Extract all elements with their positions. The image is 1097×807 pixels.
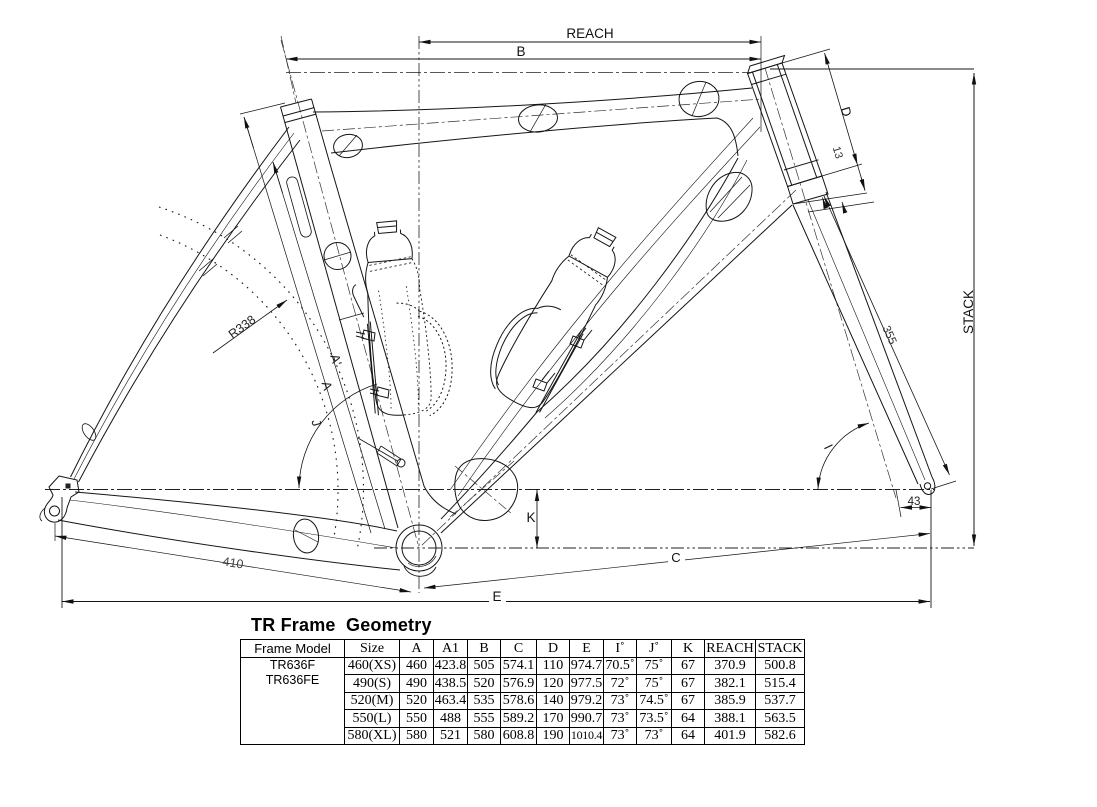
svg-text:A': A' — [327, 352, 345, 367]
svg-text:B: B — [516, 44, 525, 59]
svg-text:I: I — [821, 442, 836, 452]
svg-text:J: J — [308, 418, 324, 429]
svg-text:R338: R338 — [226, 312, 258, 341]
svg-text:REACH: REACH — [566, 26, 613, 41]
svg-text:E: E — [492, 589, 501, 604]
svg-text:C: C — [671, 550, 680, 565]
svg-text:410: 410 — [222, 555, 245, 572]
svg-text:13: 13 — [830, 145, 845, 160]
svg-text:A: A — [319, 379, 336, 392]
svg-text:STACK: STACK — [961, 290, 976, 334]
svg-text:K: K — [526, 510, 535, 525]
svg-text:43: 43 — [908, 496, 921, 508]
